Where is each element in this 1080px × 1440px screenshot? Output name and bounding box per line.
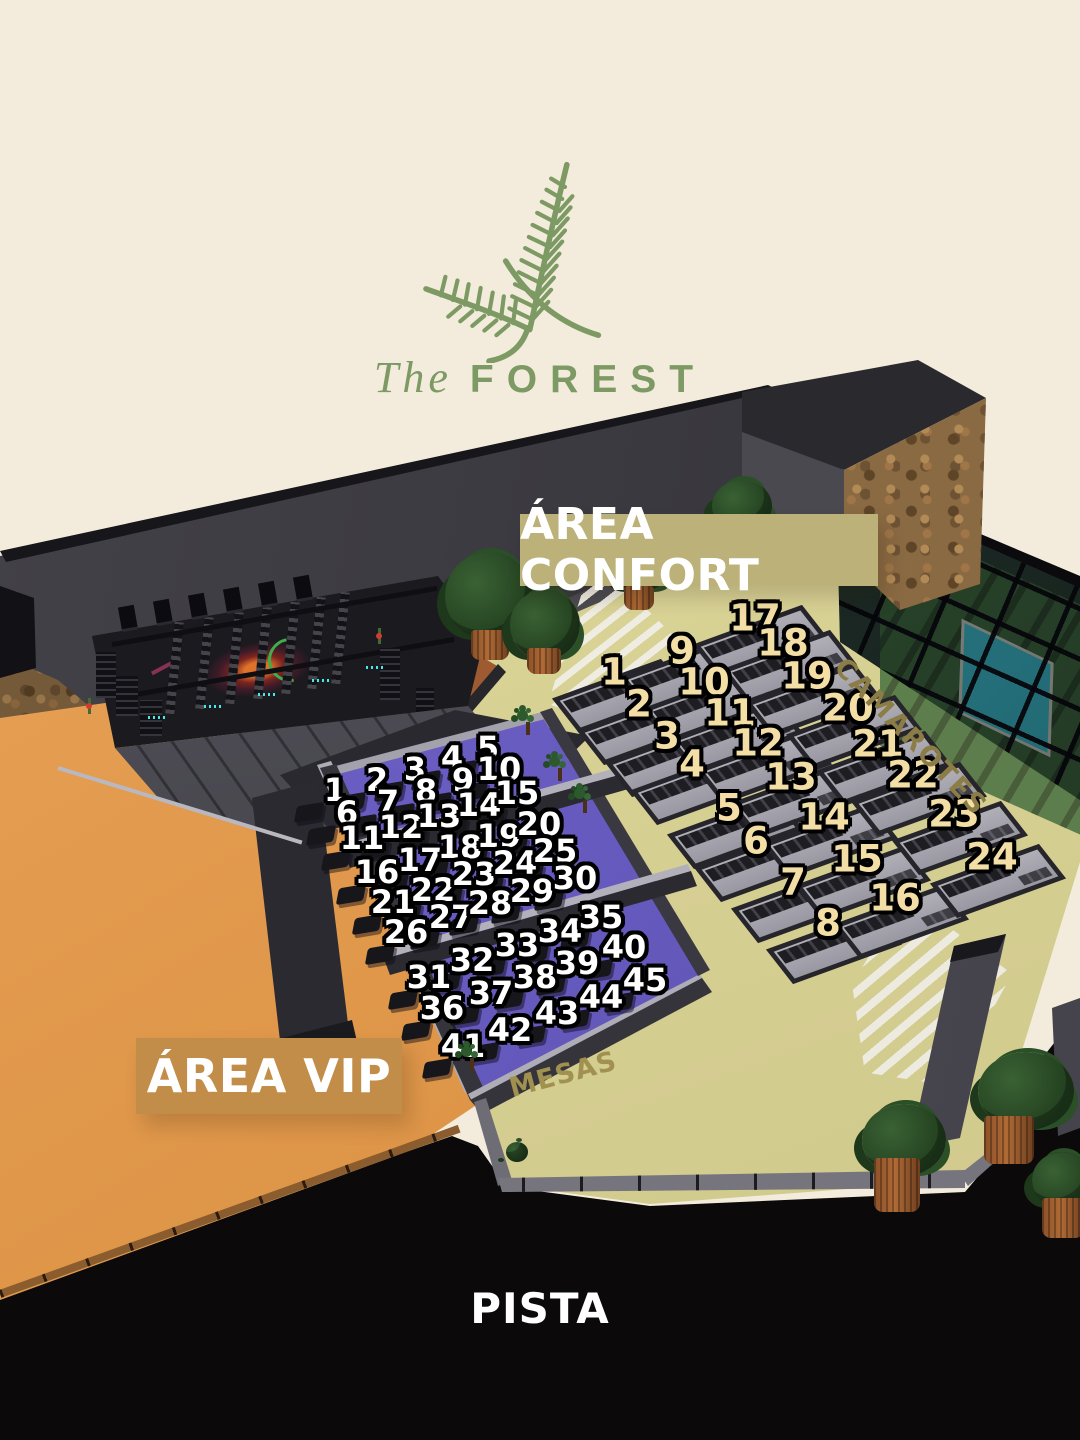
vip-table-39[interactable]: 39 (555, 947, 600, 979)
planter-pot (874, 1158, 920, 1212)
stage-led-strip (312, 679, 330, 682)
confort-table-16[interactable]: 16 (869, 880, 921, 917)
fern-leaves-icon (412, 148, 642, 363)
line-array-speaker (380, 648, 400, 700)
stage-led-strip (204, 705, 222, 708)
confort-table-14[interactable]: 14 (798, 799, 850, 836)
vip-table-30[interactable]: 30 (553, 862, 598, 894)
logo-the: The (374, 352, 452, 403)
vip-table-43[interactable]: 43 (535, 997, 580, 1029)
stage-led-strip (258, 693, 276, 696)
confort-table-2[interactable]: 2 (626, 686, 652, 723)
vip-table-36[interactable]: 36 (420, 992, 465, 1024)
vip-table-32[interactable]: 32 (450, 944, 495, 976)
vip-table-33[interactable]: 33 (495, 929, 540, 961)
vip-table-38[interactable]: 38 (513, 961, 558, 993)
stage-led-strip (366, 666, 384, 669)
planter-pot (527, 648, 561, 674)
speaker-stack (116, 676, 138, 716)
palm-plant (583, 800, 587, 813)
area-vip-text: ÁREA VIP (147, 1049, 392, 1103)
confort-table-13[interactable]: 13 (765, 759, 817, 796)
confort-table-5[interactable]: 5 (716, 790, 742, 827)
logo-forest: FOREST (470, 358, 706, 402)
tiny-plant (378, 628, 381, 644)
pista-label: PISTA (470, 1284, 610, 1333)
area-confort-text: ÁREA CONFORT (520, 499, 878, 601)
stage-led-strip (148, 716, 166, 719)
logo-wordmark: The FOREST (374, 352, 706, 403)
tiny-plant (88, 698, 91, 714)
confort-table-3[interactable]: 3 (654, 718, 680, 755)
vip-table-45[interactable]: 45 (623, 964, 668, 996)
shrub (506, 1142, 528, 1162)
confort-table-6[interactable]: 6 (743, 823, 769, 860)
confort-table-15[interactable]: 15 (831, 841, 883, 878)
pista-text: PISTA (470, 1284, 610, 1333)
vip-table-26[interactable]: 26 (384, 916, 429, 948)
venue-map: 123456789101112131415161718192021222324 … (0, 0, 1080, 1440)
vip-table-29[interactable]: 29 (510, 875, 555, 907)
planter-pot (1042, 1198, 1080, 1238)
confort-table-7[interactable]: 7 (780, 864, 806, 901)
vip-table-27[interactable]: 27 (429, 901, 474, 933)
confort-table-8[interactable]: 8 (815, 905, 841, 942)
vip-table-37[interactable]: 37 (469, 977, 514, 1009)
vip-table-28[interactable]: 28 (468, 887, 513, 919)
vip-table-44[interactable]: 44 (579, 981, 624, 1013)
vip-table-40[interactable]: 40 (602, 931, 647, 963)
confort-table-1[interactable]: 1 (601, 654, 627, 691)
vip-table-34[interactable]: 34 (538, 915, 583, 947)
palm-plant (526, 722, 530, 735)
palm-plant (470, 1058, 474, 1071)
planter-pot (471, 630, 509, 660)
confort-table-24[interactable]: 24 (966, 839, 1018, 876)
palm-plant (558, 768, 562, 781)
confort-table-4[interactable]: 4 (679, 746, 705, 783)
speaker-stack (96, 652, 116, 698)
planter-pot (984, 1116, 1034, 1164)
vip-table-11[interactable]: 11 (340, 822, 385, 854)
vip-table-42[interactable]: 42 (488, 1014, 533, 1046)
area-vip-banner: ÁREA VIP (136, 1038, 402, 1114)
area-confort-banner: ÁREA CONFORT (520, 514, 878, 586)
